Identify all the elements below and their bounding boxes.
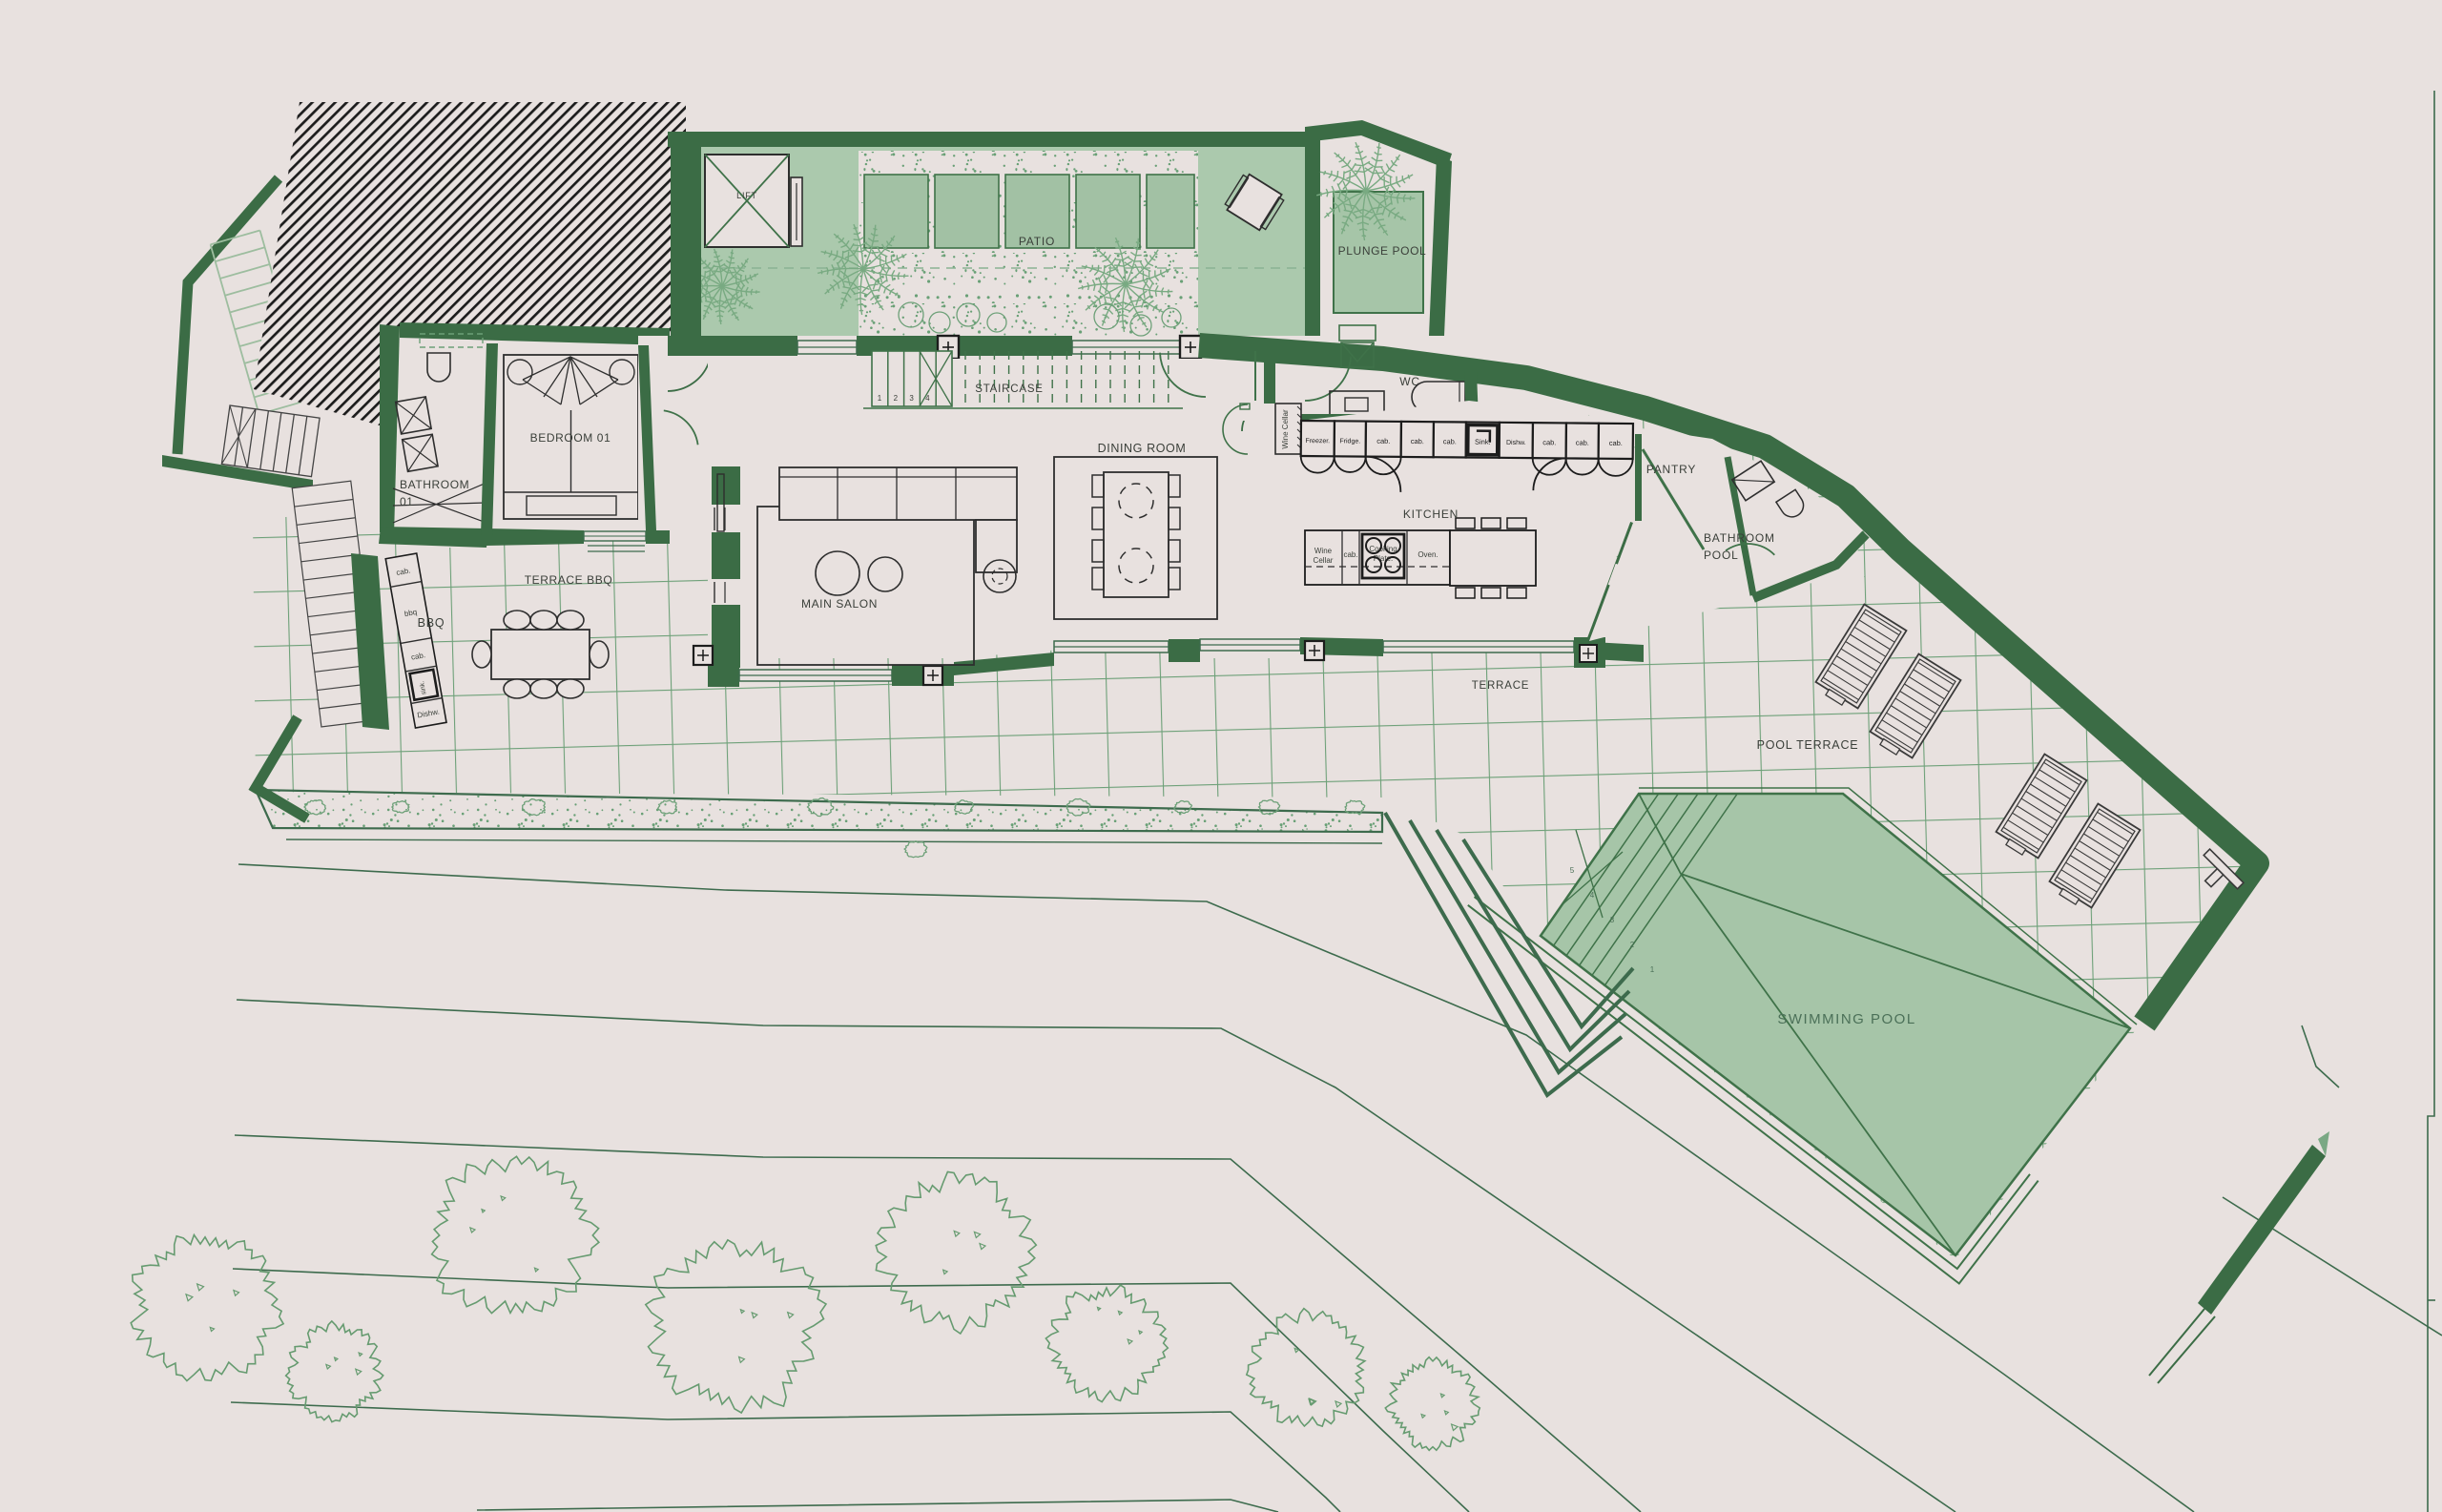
svg-text:Wine Cellar: Wine Cellar [1281, 409, 1290, 449]
svg-text:cab.: cab. [1542, 438, 1556, 446]
svg-text:2: 2 [894, 394, 899, 403]
svg-text:Freezer.: Freezer. [1305, 438, 1330, 445]
svg-text:BBQ: BBQ [418, 616, 445, 630]
svg-text:Oven.: Oven. [1418, 550, 1438, 559]
svg-text:1: 1 [878, 394, 882, 403]
svg-text:POOL: POOL [1704, 549, 1739, 562]
svg-text:5: 5 [1570, 866, 1575, 875]
svg-text:Cellar: Cellar [1314, 556, 1334, 565]
svg-text:3: 3 [909, 394, 914, 403]
svg-text:cab.: cab. [1343, 550, 1357, 559]
svg-text:cab.: cab. [1443, 437, 1457, 445]
svg-text:LIFT: LIFT [736, 191, 757, 200]
svg-text:BATHROOM: BATHROOM [400, 478, 469, 491]
svg-text:BATHROOM: BATHROOM [1704, 531, 1775, 545]
svg-text:STAIRCASE: STAIRCASE [975, 383, 1044, 395]
svg-text:cab.: cab. [1376, 437, 1390, 445]
svg-text:1: 1 [1650, 965, 1655, 974]
svg-text:PATIO: PATIO [1019, 235, 1055, 248]
svg-text:PLUNGE POOL: PLUNGE POOL [1338, 244, 1427, 258]
svg-text:TERRACE BBQ: TERRACE BBQ [525, 573, 613, 587]
svg-text:01: 01 [400, 495, 414, 508]
svg-text:3: 3 [1610, 916, 1615, 924]
svg-text:DINING ROOM: DINING ROOM [1098, 442, 1187, 455]
svg-text:Cooking: Cooking [1369, 545, 1397, 553]
svg-text:2: 2 [1630, 941, 1635, 949]
svg-text:TERRACE: TERRACE [1472, 680, 1530, 692]
svg-text:cab.: cab. [1576, 439, 1589, 447]
svg-text:Fridge.: Fridge. [1339, 438, 1360, 445]
svg-text:4: 4 [1590, 891, 1595, 900]
svg-text:BEDROOM 01: BEDROOM 01 [530, 431, 611, 445]
svg-text:POOL TERRACE: POOL TERRACE [1757, 738, 1859, 752]
svg-text:Sink.: Sink. [1475, 438, 1491, 446]
svg-text:cab.: cab. [1411, 437, 1424, 445]
svg-text:Dishw.: Dishw. [1506, 440, 1526, 446]
svg-text:cab.: cab. [1609, 439, 1623, 447]
svg-text:PANTRY: PANTRY [1646, 463, 1696, 476]
svg-text:Wine: Wine [1314, 547, 1333, 555]
svg-text:KITCHEN: KITCHEN [1403, 507, 1459, 521]
svg-text:MAIN SALON: MAIN SALON [801, 597, 878, 611]
svg-text:SWIMMING POOL: SWIMMING POOL [1777, 1011, 1915, 1027]
svg-text:4: 4 [925, 394, 930, 403]
